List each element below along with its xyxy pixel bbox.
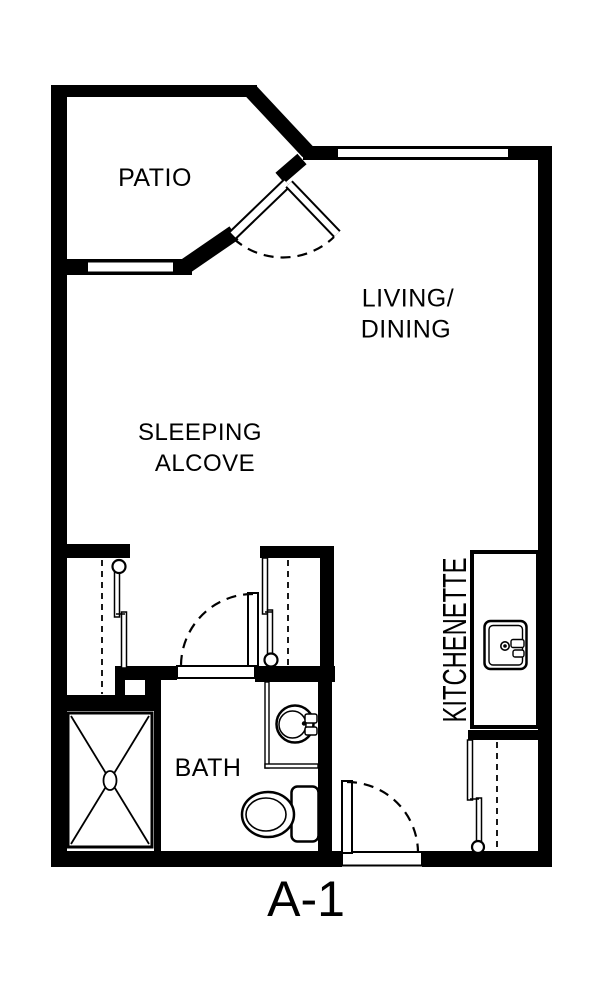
bath-door-threshold — [177, 666, 255, 678]
vanity-counter-left-edge — [265, 682, 269, 768]
sleeping-alcove-label-line2: ALCOVE — [155, 450, 255, 477]
bottom-exterior-wall-left — [51, 851, 342, 867]
left-closet-top-wall — [65, 544, 130, 558]
shower-drain — [104, 771, 117, 790]
right-exterior-wall — [538, 146, 552, 867]
living-corner-wall — [303, 146, 338, 160]
entry-door-leaf — [342, 781, 352, 853]
shower-top-wall — [51, 695, 161, 711]
right-closet-door-pull — [265, 654, 278, 667]
bottom-exterior-wall-right — [422, 851, 552, 867]
kitchenette — [472, 552, 538, 727]
living-window-outer-line — [338, 146, 508, 149]
kitchen-sink-faucet-spout — [511, 640, 524, 648]
patio-bottom-wall-left — [66, 259, 88, 275]
toilet — [242, 787, 319, 842]
left-exterior-wall — [51, 85, 67, 867]
right-closet-side-wall — [320, 546, 334, 682]
toilet-tank — [292, 787, 319, 842]
shower-junction-wall-a — [115, 680, 125, 695]
kitchenette-label: KITCHENETTE — [436, 558, 473, 723]
left-closet-door-pull — [113, 560, 126, 573]
shower-bath-partition — [154, 711, 161, 851]
living-dining-label-line1: LIVING/ — [362, 285, 454, 313]
unit-label: A-1 — [267, 871, 345, 927]
bath-label: BATH — [175, 754, 242, 782]
patio-window-inner-line — [88, 272, 173, 276]
shower-junction-wall-b — [145, 680, 161, 695]
entry-closet-door-pull — [472, 841, 484, 853]
floor-plan-page: PATIO LIVING/ DINING SLEEPING ALCOVE BAT… — [0, 0, 603, 998]
bathroom-sink-faucet — [302, 721, 306, 725]
patio-label: PATIO — [118, 164, 192, 192]
bath-right-wall — [318, 682, 332, 851]
kitchen-sink-faucet-dot — [503, 644, 507, 648]
patio-top-wall — [51, 85, 257, 97]
vanity-counter-bottom-edge — [265, 764, 318, 768]
bath-door-leaf — [248, 593, 258, 666]
kitchenette-bottom-wall — [468, 730, 552, 740]
entry-closet-door-panel-1 — [468, 740, 473, 800]
kitchen-sink-faucet-handle — [513, 650, 524, 657]
floor-plan: PATIO LIVING/ DINING SLEEPING ALCOVE BAT… — [0, 0, 603, 998]
living-window-inner-line — [338, 157, 508, 160]
shower — [68, 713, 152, 847]
right-closet-door-panel-1 — [263, 558, 268, 614]
sleeping-alcove-label-line1: SLEEPING — [138, 419, 262, 446]
bathroom-sink-faucet-handle-2 — [305, 727, 317, 735]
bathroom-sink-faucet-handle-1 — [305, 714, 317, 723]
entry-door-threshold — [342, 852, 422, 866]
left-closet-door-panel-2 — [122, 612, 127, 668]
patio-window-outer-line — [88, 259, 173, 263]
living-dining-label-line2: DINING — [361, 316, 452, 344]
bath-door-right-wall — [255, 666, 335, 682]
